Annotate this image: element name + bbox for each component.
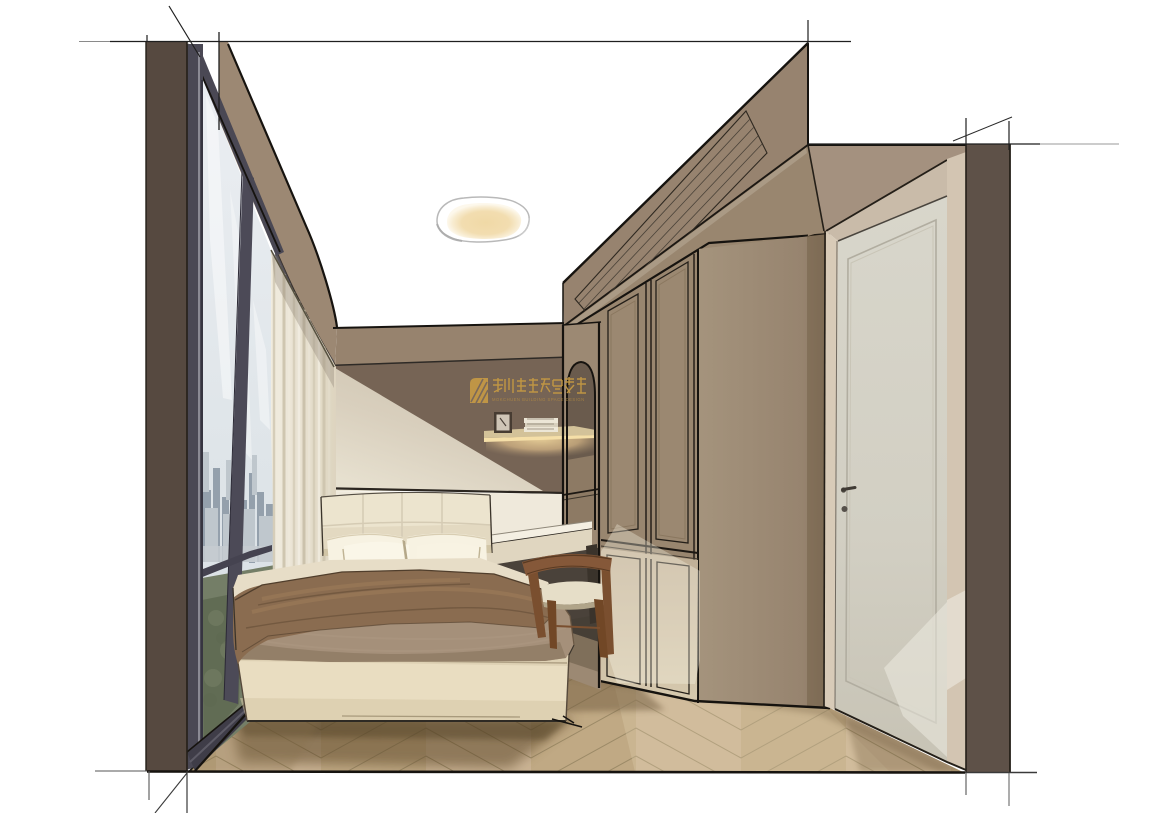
svg-text:MOKCHUEN BUILDING SPACE DESIGN: MOKCHUEN BUILDING SPACE DESIGN [492,397,585,402]
